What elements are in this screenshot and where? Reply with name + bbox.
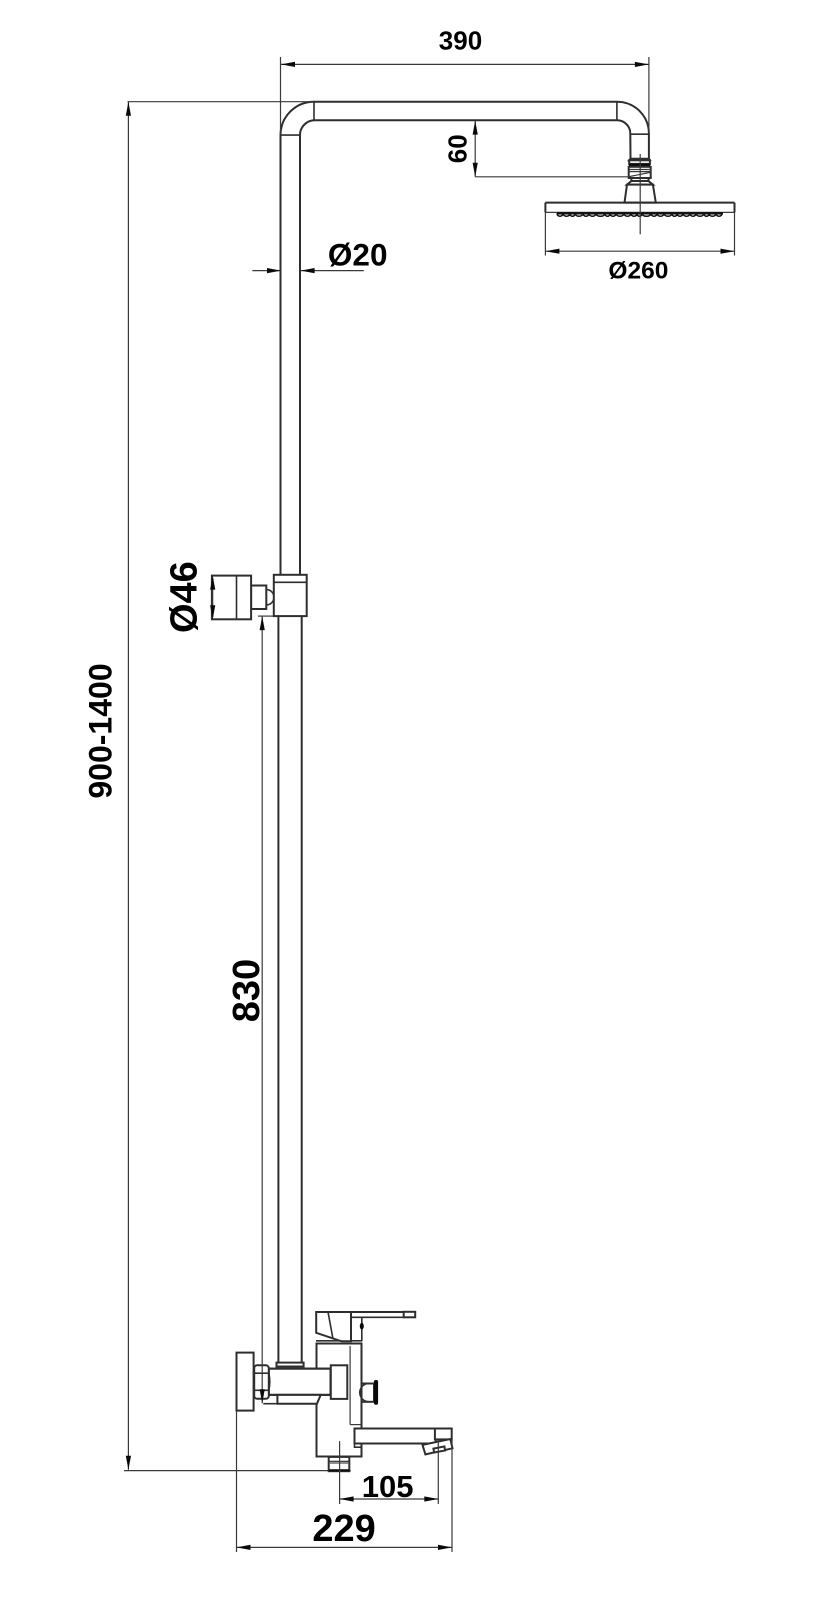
svg-text:Ø260: Ø260 xyxy=(608,258,668,285)
svg-text:229: 229 xyxy=(312,1508,375,1550)
svg-text:390: 390 xyxy=(439,26,482,56)
svg-text:60: 60 xyxy=(443,134,473,163)
svg-text:Ø20: Ø20 xyxy=(328,237,388,273)
svg-text:105: 105 xyxy=(362,1469,414,1504)
svg-text:830: 830 xyxy=(226,959,268,1022)
svg-text:Ø46: Ø46 xyxy=(164,561,206,633)
svg-text:900-1400: 900-1400 xyxy=(83,663,119,798)
